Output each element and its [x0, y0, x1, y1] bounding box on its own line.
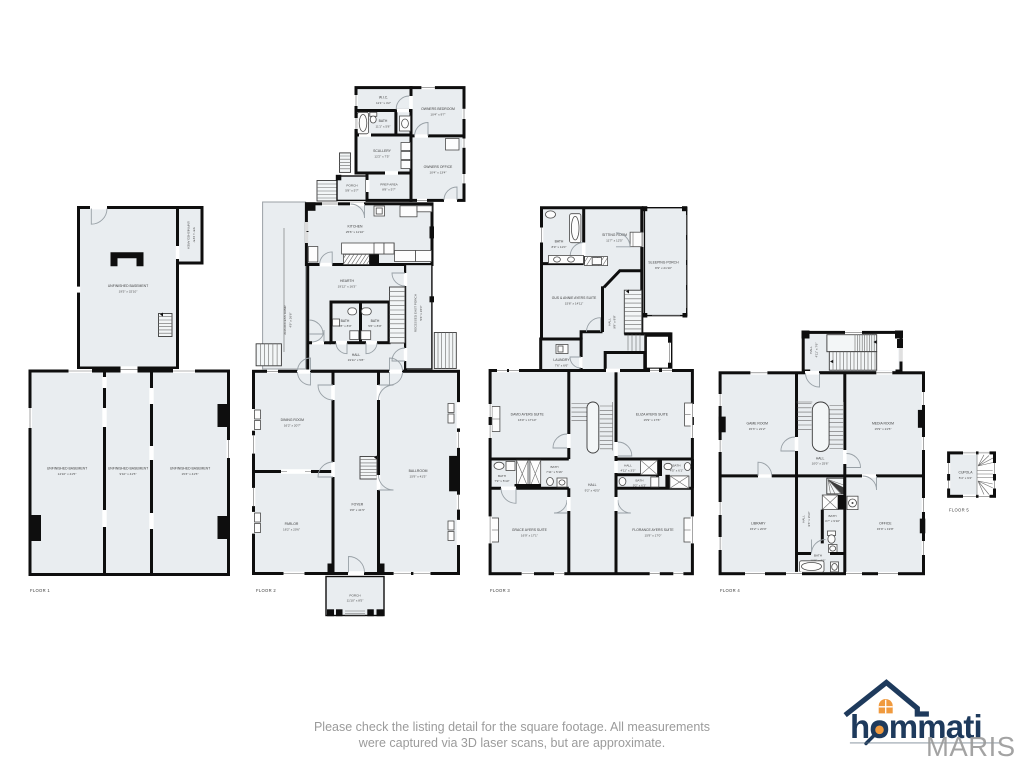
- svg-text:15'9" x 17'0": 15'9" x 17'0": [645, 534, 662, 538]
- svg-text:PREP AREA: PREP AREA: [380, 183, 398, 187]
- svg-text:25'6" x 11'10": 25'6" x 11'10": [346, 230, 364, 234]
- svg-text:FLOOR 5: FLOOR 5: [949, 508, 969, 513]
- svg-text:15'3" x 21'2": 15'3" x 21'2": [749, 427, 766, 431]
- svg-text:BATH: BATH: [672, 464, 680, 468]
- svg-text:7'6" x 6'6": 7'6" x 6'6": [555, 364, 569, 368]
- svg-text:OFFICE: OFFICE: [879, 522, 892, 526]
- svg-text:LAUNDRY: LAUNDRY: [553, 358, 570, 362]
- svg-text:10'0" x 25'6": 10'0" x 25'6": [812, 462, 829, 466]
- svg-text:BALLROOM: BALLROOM: [409, 469, 428, 473]
- svg-text:GUS & ANNIE AYERS SUITE: GUS & ANNIE AYERS SUITE: [552, 296, 597, 300]
- svg-text:FLOOR 4: FLOOR 4: [720, 588, 740, 593]
- svg-text:BATH: BATH: [550, 465, 558, 469]
- svg-text:11'1" x 5'8": 11'1" x 5'8": [375, 125, 390, 129]
- svg-text:19'11" x 5'8": 19'11" x 5'8": [348, 358, 365, 362]
- svg-text:11'7" x 12'5": 11'7" x 12'5": [606, 239, 623, 243]
- svg-text:KITCHEN: KITCHEN: [348, 225, 363, 229]
- svg-text:BATH: BATH: [828, 514, 836, 518]
- svg-text:15'8" x 14'11": 15'8" x 14'11": [565, 302, 583, 306]
- svg-text:Please check the listing detai: Please check the listing detail for the …: [314, 720, 710, 734]
- svg-text:15'2" x 20'0": 15'2" x 20'0": [750, 527, 767, 531]
- svg-text:DINING ROOM: DINING ROOM: [281, 418, 305, 422]
- svg-text:15'9" x 21'5": 15'9" x 21'5": [875, 427, 892, 431]
- svg-text:HALL: HALL: [816, 457, 825, 461]
- svg-text:9'2" x 6'3": 9'2" x 6'3": [633, 484, 647, 488]
- svg-text:5'8" x 5'7": 5'8" x 5'7": [345, 189, 359, 193]
- svg-text:MEDIA ROOM: MEDIA ROOM: [872, 422, 894, 426]
- svg-text:5'4" x 9'2": 5'4" x 9'2": [959, 476, 973, 480]
- svg-text:ELIZA AYERS SUITE: ELIZA AYERS SUITE: [636, 413, 669, 417]
- svg-text:FOYER: FOYER: [352, 503, 364, 507]
- svg-text:MARIS: MARIS: [926, 731, 1016, 762]
- svg-text:HALL: HALL: [809, 346, 813, 354]
- svg-text:10'4" x 9'7": 10'4" x 9'7": [430, 113, 445, 117]
- svg-text:BATH: BATH: [371, 319, 380, 323]
- svg-text:16'2" x 20'6": 16'2" x 20'6": [283, 528, 300, 532]
- svg-text:4'9" x 26'6": 4'9" x 26'6": [289, 312, 293, 327]
- svg-text:12'2" x 7'5": 12'2" x 7'5": [374, 155, 389, 159]
- svg-text:4'5" x 6'1": 4'5" x 6'1": [670, 469, 684, 473]
- svg-text:19'5" x 32'10": 19'5" x 32'10": [119, 290, 138, 294]
- svg-text:GRACE AYERS SUITE: GRACE AYERS SUITE: [512, 528, 548, 532]
- svg-text:5'8" x 19'5": 5'8" x 19'5": [192, 227, 196, 242]
- svg-text:4'7" x 9'10": 4'7" x 9'10": [825, 519, 840, 523]
- svg-text:were captured via 3D laser sca: were captured via 3D laser scans, but ar…: [358, 736, 665, 750]
- svg-text:HALL: HALL: [608, 318, 612, 326]
- svg-text:BATH: BATH: [635, 479, 643, 483]
- svg-text:7'9" x 5'10": 7'9" x 5'10": [494, 479, 509, 483]
- svg-text:9'8" x 41'5": 9'8" x 41'5": [350, 508, 365, 512]
- svg-text:FLORANCE AYERS SUITE: FLORANCE AYERS SUITE: [632, 528, 674, 532]
- svg-text:15'3" x 41'5": 15'3" x 41'5": [182, 472, 199, 476]
- svg-text:9'8" x 8'8": 9'8" x 8'8": [613, 315, 617, 329]
- svg-text:BATH: BATH: [379, 119, 388, 123]
- svg-text:8'8" x 5'7": 8'8" x 5'7": [382, 188, 396, 192]
- svg-text:GAME ROOM: GAME ROOM: [746, 422, 768, 426]
- svg-text:PORCH: PORCH: [346, 184, 357, 188]
- svg-text:11'10" x 8'5": 11'10" x 8'5": [347, 599, 364, 603]
- svg-text:OWNERS OFFICE: OWNERS OFFICE: [424, 165, 453, 169]
- svg-text:15'9" x 19'8": 15'9" x 19'8": [877, 527, 894, 531]
- svg-text:FLOOR 2: FLOOR 2: [256, 588, 276, 593]
- svg-text:16'0" x 17'10": 16'0" x 17'10": [518, 418, 537, 422]
- svg-text:OWNERS BEDROOM: OWNERS BEDROOM: [421, 107, 455, 111]
- svg-text:CUPOLA: CUPOLA: [959, 471, 974, 475]
- svg-text:15'9" x 17'6": 15'9" x 17'6": [644, 418, 661, 422]
- svg-text:SCULLERY: SCULLERY: [373, 149, 392, 153]
- svg-text:9'10" x 41'5": 9'10" x 41'5": [120, 472, 137, 476]
- svg-text:W.I.C.: W.I.C.: [379, 96, 388, 100]
- svg-text:DAVID AYERS SUITE: DAVID AYERS SUITE: [511, 413, 545, 417]
- svg-text:HALL: HALL: [588, 483, 597, 487]
- svg-text:5'6" x 22'0": 5'6" x 22'0": [419, 305, 423, 320]
- svg-text:4'11" x 3'3": 4'11" x 3'3": [620, 469, 635, 473]
- svg-text:UNFINISHED BASEMENT: UNFINISHED BASEMENT: [47, 467, 87, 471]
- svg-text:7'11" x 5'16": 7'11" x 5'16": [546, 470, 563, 474]
- svg-text:16'9" x 17'1": 16'9" x 17'1": [521, 534, 538, 538]
- svg-text:LIBRARY: LIBRARY: [751, 522, 766, 526]
- svg-text:16'2" x 20'7": 16'2" x 20'7": [284, 424, 301, 428]
- svg-text:UNFINISHED BASEMENT: UNFINISHED BASEMENT: [108, 284, 148, 288]
- svg-text:FLOOR 1: FLOOR 1: [30, 588, 50, 593]
- svg-text:4'8" x 8'0": 4'8" x 8'0": [338, 324, 352, 328]
- svg-text:SLEEPING PORCH: SLEEPING PORCH: [648, 261, 679, 265]
- svg-text:PARLOR: PARLOR: [285, 522, 299, 526]
- svg-text:9'2" x 43'5": 9'2" x 43'5": [585, 489, 600, 493]
- svg-text:19'12" x 16'3": 19'12" x 16'3": [338, 285, 357, 289]
- svg-text:RECESSED EAST PORCH: RECESSED EAST PORCH: [414, 294, 418, 332]
- svg-text:15'9" x 41'5": 15'9" x 41'5": [410, 475, 427, 479]
- svg-text:HEARTH: HEARTH: [340, 279, 354, 283]
- svg-text:4'11" x 7'6": 4'11" x 7'6": [815, 342, 819, 357]
- svg-text:14'10" x 41'5": 14'10" x 41'5": [58, 472, 77, 476]
- svg-text:HALL: HALL: [624, 464, 632, 468]
- svg-text:5'6" x 8'0": 5'6" x 8'0": [368, 324, 382, 328]
- svg-text:10'4" x 13'4": 10'4" x 13'4": [430, 171, 447, 175]
- svg-text:PORCH: PORCH: [349, 594, 360, 598]
- svg-text:8'9" x 11'0": 8'9" x 11'0": [551, 245, 566, 249]
- svg-text:HALL: HALL: [802, 515, 806, 523]
- svg-text:11'1" x 4'2": 11'1" x 4'2": [376, 101, 391, 105]
- svg-text:HALL: HALL: [352, 353, 361, 357]
- svg-text:8'9" x 21'10": 8'9" x 21'10": [655, 266, 672, 270]
- svg-text:UNFINISHED BASEMENT: UNFINISHED BASEMENT: [108, 467, 148, 471]
- svg-text:9'3" x 9'10": 9'3" x 9'10": [807, 511, 811, 526]
- svg-text:ADA ACCESS RAMP: ADA ACCESS RAMP: [283, 305, 287, 334]
- svg-text:BATH: BATH: [341, 319, 350, 323]
- svg-text:BATH: BATH: [498, 474, 506, 478]
- svg-text:UNFINISHED AREA: UNFINISHED AREA: [187, 221, 191, 250]
- svg-text:BATH: BATH: [555, 240, 564, 244]
- svg-text:FLOOR 3: FLOOR 3: [490, 588, 510, 593]
- svg-text:BATH: BATH: [814, 554, 822, 558]
- svg-text:UNFINISHED BASEMENT: UNFINISHED BASEMENT: [170, 467, 210, 471]
